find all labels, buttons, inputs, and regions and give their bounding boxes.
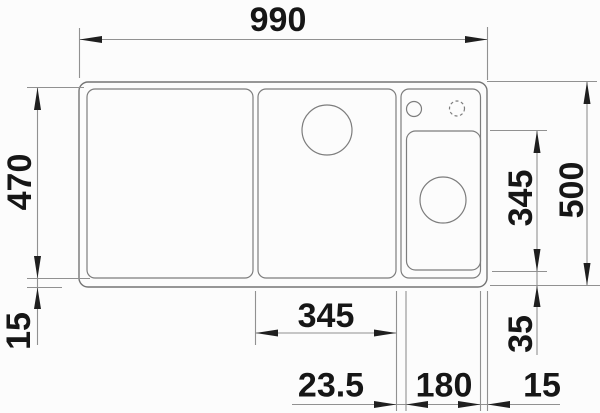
arrowhead-down (534, 249, 541, 272)
arrowhead-down (34, 256, 41, 279)
arrowhead-left (256, 330, 279, 337)
optional-tap-hole-dashed-icon (450, 101, 465, 116)
dimension-label: 15 (523, 367, 561, 405)
dimension-label: 990 (250, 1, 307, 39)
arrowhead-down (584, 263, 591, 286)
drainboard-area (87, 89, 253, 278)
arrowhead-left (80, 36, 103, 43)
arrowhead-left (488, 401, 511, 408)
main-bowl (258, 89, 396, 278)
right-section (401, 89, 481, 278)
arrowhead-up (584, 82, 591, 105)
dimension-overall-width: 990 (80, 1, 488, 80)
dimension-right-bowl-width: 180 (406, 291, 481, 411)
dimension-main-bowl-depth: 470 (1, 88, 90, 279)
dimension-label: 180 (416, 367, 473, 405)
small-bowl-drain-circle (420, 177, 466, 223)
arrowhead-up (534, 286, 541, 308)
main-bowl-drain-circle (302, 105, 352, 155)
dimension-right-bowl-length: 345 (490, 131, 547, 272)
arrowhead-up (534, 131, 541, 154)
dimension-front-rim-left: 15 (0, 279, 62, 350)
arrowhead-right (374, 330, 397, 337)
dimension-label: 35 (502, 315, 540, 353)
tap-hole-icon (407, 102, 422, 117)
arrowhead-right (465, 36, 488, 43)
dimension-label: 470 (1, 154, 39, 211)
dimension-label: 15 (0, 312, 38, 350)
technical-drawing-page: 990 470 15 500 345 35 (0, 0, 600, 413)
sink-body (79, 82, 487, 287)
dimension-label: 23.5 (298, 367, 364, 405)
dimension-label: 345 (298, 297, 355, 335)
small-bowl (407, 131, 481, 270)
dimension-label: 345 (502, 170, 540, 227)
sink-dimension-drawing: 990 470 15 500 345 35 (0, 0, 600, 413)
arrowhead-up (34, 288, 41, 310)
arrowhead-up (34, 88, 41, 111)
arrowhead-right (374, 401, 397, 408)
dimension-label: 500 (553, 162, 591, 219)
dimension-right-bowl-front-offset: 35 (502, 272, 541, 356)
